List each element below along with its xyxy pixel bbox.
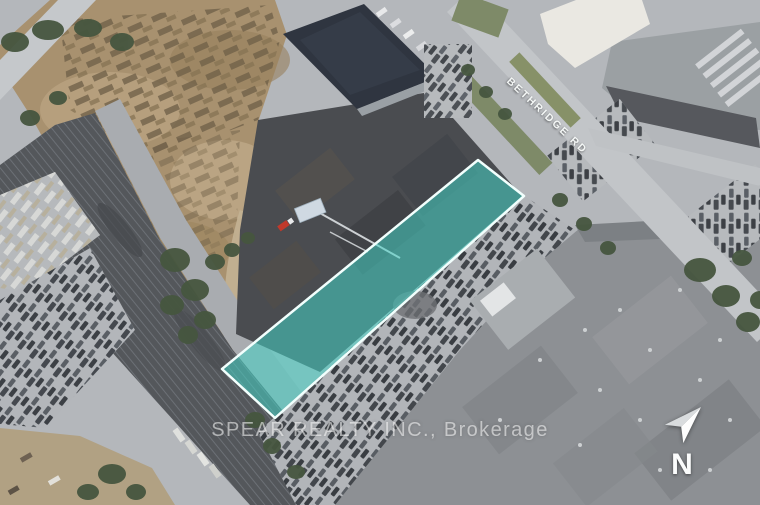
- north-parking-strip: [424, 44, 472, 118]
- brokerage-watermark: SPEAR REALTY INC., Brokerage: [160, 419, 600, 442]
- aerial-map: BETHRIDGE RD SPEAR REALTY INC., Brokerag…: [0, 0, 760, 505]
- north-label: N: [650, 448, 714, 482]
- north-indicator: N: [650, 396, 714, 492]
- north-arrow-icon: [650, 396, 714, 452]
